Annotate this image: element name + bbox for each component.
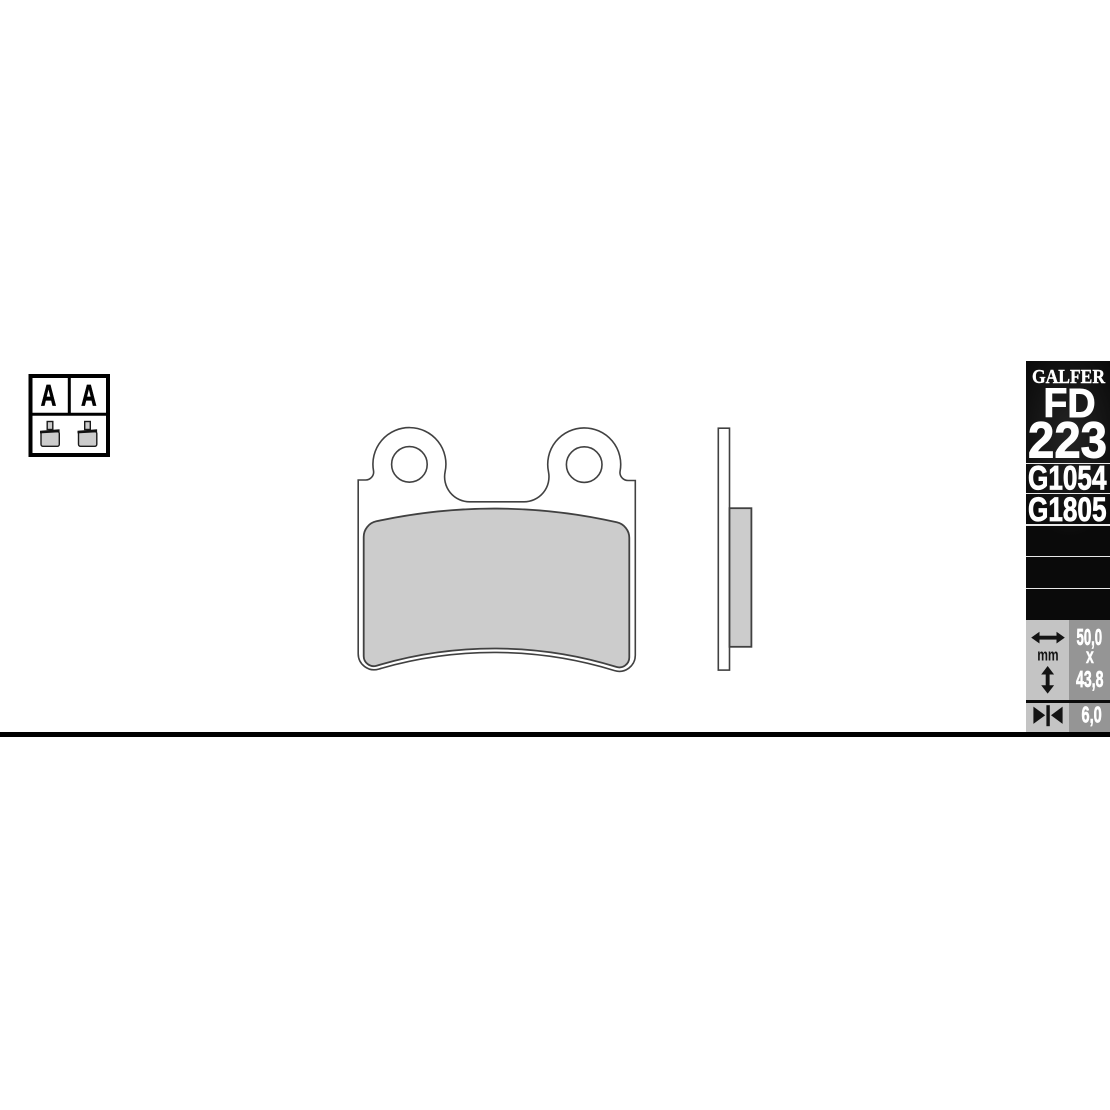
svg-text:43,8: 43,8 bbox=[1076, 666, 1103, 692]
svg-text:6,0: 6,0 bbox=[1082, 702, 1102, 728]
svg-text:A: A bbox=[81, 379, 97, 412]
svg-text:x: x bbox=[1086, 645, 1094, 668]
svg-text:A: A bbox=[41, 379, 57, 412]
svg-text:G1805: G1805 bbox=[1028, 491, 1107, 529]
svg-text:mm: mm bbox=[1037, 647, 1058, 665]
